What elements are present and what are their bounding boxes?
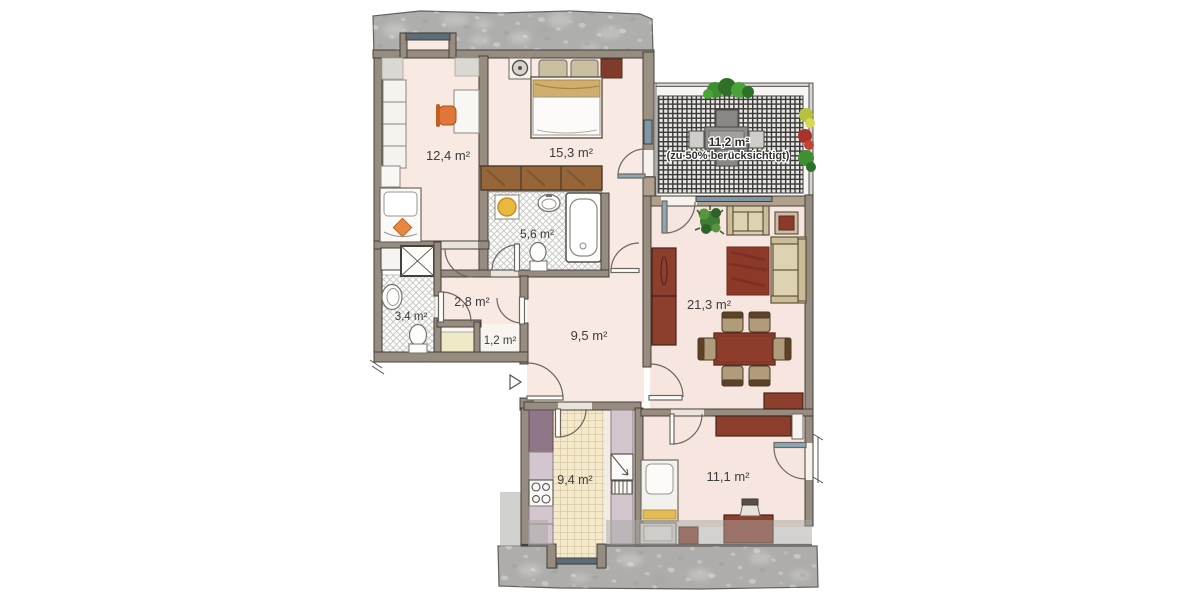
svg-text:21,3 m²: 21,3 m²	[687, 297, 732, 312]
svg-text:11,2 m²: 11,2 m²	[709, 135, 750, 149]
svg-text:5,6 m²: 5,6 m²	[520, 227, 554, 241]
svg-text:3,4 m²: 3,4 m²	[395, 311, 428, 323]
svg-text:12,4 m²: 12,4 m²	[426, 148, 471, 163]
svg-text:1,2 m²: 1,2 m²	[484, 335, 517, 347]
svg-text:9,5 m²: 9,5 m²	[571, 328, 609, 343]
svg-text:11,1 m²: 11,1 m²	[706, 469, 750, 484]
svg-text:9,4 m²: 9,4 m²	[557, 473, 592, 487]
svg-text:15,3 m²: 15,3 m²	[549, 145, 594, 160]
svg-text:2,8 m²: 2,8 m²	[454, 295, 489, 309]
svg-text:(zu 50% berücksichtigt): (zu 50% berücksichtigt)	[667, 150, 790, 162]
